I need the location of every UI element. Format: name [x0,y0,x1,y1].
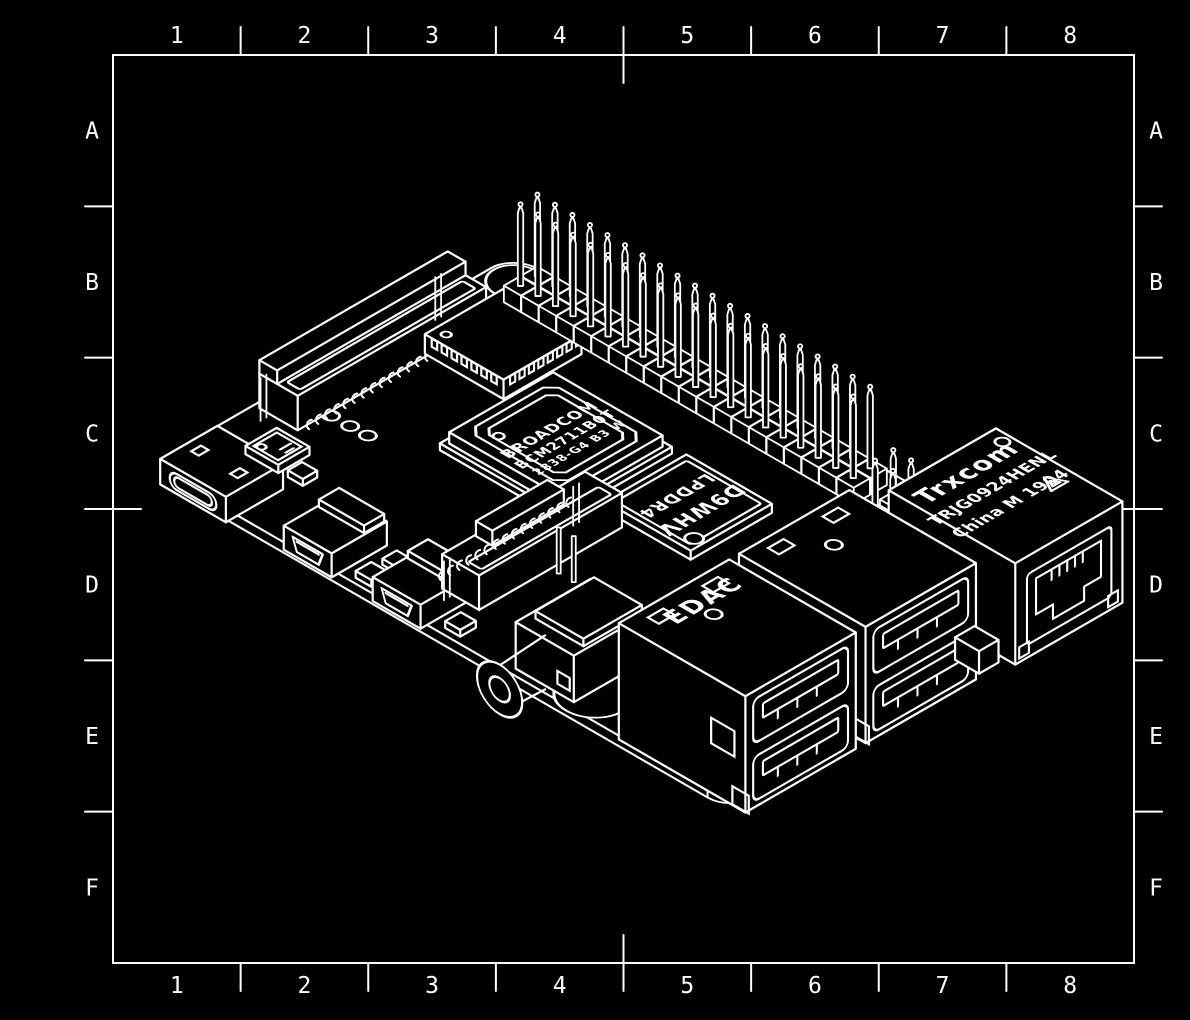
grid-row-label-right: D [1149,573,1163,599]
grid-row-label-left: F [85,875,99,901]
grid-col-label-top: 5 [680,23,694,49]
grid-row-label-right: F [1149,875,1163,901]
grid-row-label-right: A [1149,119,1163,145]
grid-col-label-bottom: 8 [1063,973,1077,999]
grid-col-label-top: 7 [936,23,950,49]
grid-col-label-top: 1 [170,23,184,49]
grid-row-label-left: B [85,270,99,296]
grid-col-label-bottom: 6 [808,973,822,999]
technical-drawing: 1122334455667788AABBCCDDEEFFBROADCOMBCM2… [0,0,1190,1020]
grid-col-label-top: 3 [425,23,439,49]
grid-col-label-bottom: 1 [170,973,184,999]
grid-col-label-top: 4 [553,23,567,49]
grid-col-label-bottom: 2 [298,973,312,999]
grid-row-label-left: C [85,421,99,447]
grid-col-label-bottom: 4 [553,973,567,999]
grid-col-label-bottom: 5 [680,973,694,999]
grid-col-label-bottom: 3 [425,973,439,999]
grid-row-label-left: E [85,724,99,750]
grid-row-label-right: E [1149,724,1163,750]
grid-row-label-left: D [85,573,99,599]
grid-row-label-left: A [85,119,99,145]
grid-row-label-right: C [1149,421,1163,447]
grid-col-label-bottom: 7 [936,973,950,999]
grid-col-label-top: 2 [298,23,312,49]
grid-col-label-top: 6 [808,23,822,49]
blueprint-page: 1122334455667788AABBCCDDEEFFBROADCOMBCM2… [0,0,1190,1020]
grid-col-label-top: 8 [1063,23,1077,49]
grid-row-label-right: B [1149,270,1163,296]
